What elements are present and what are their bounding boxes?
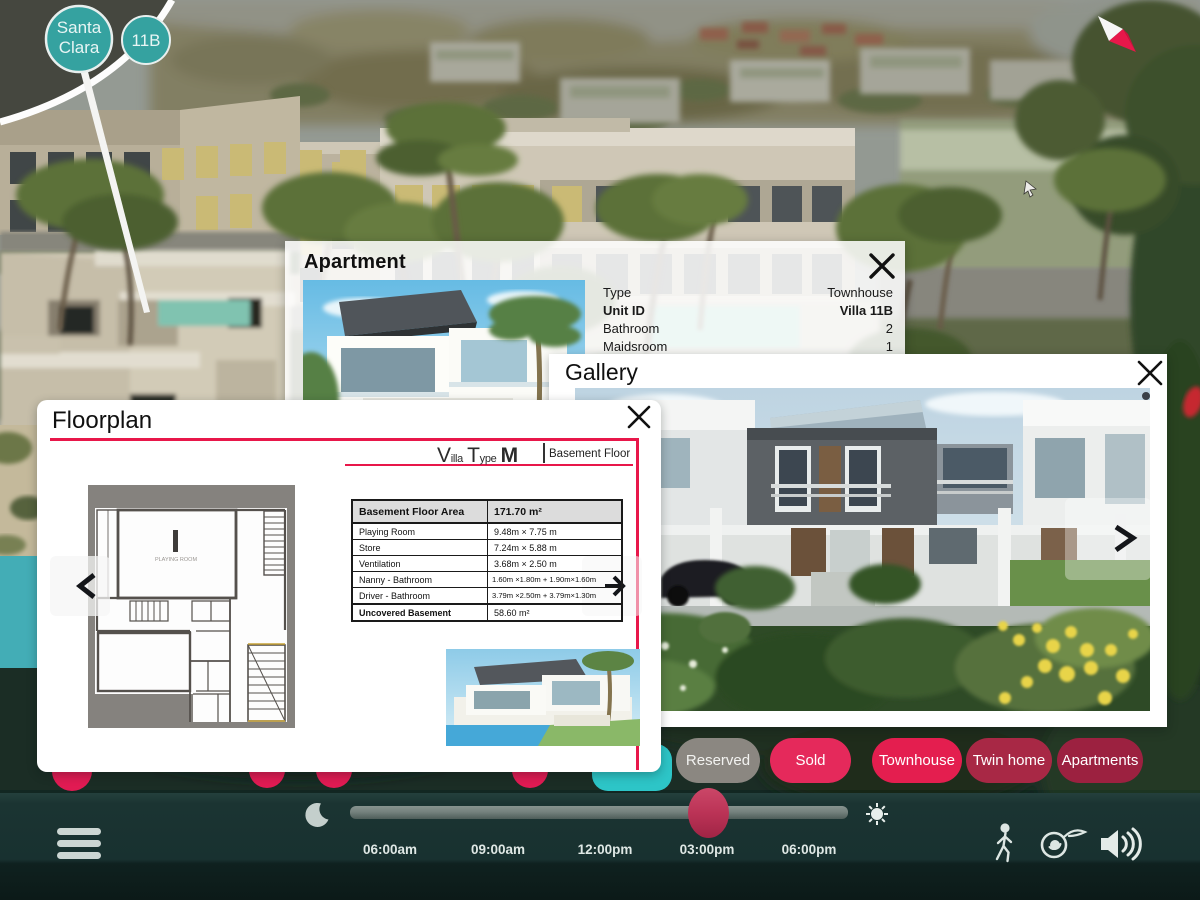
svg-text:PLAYING ROOM: PLAYING ROOM [155,557,197,563]
